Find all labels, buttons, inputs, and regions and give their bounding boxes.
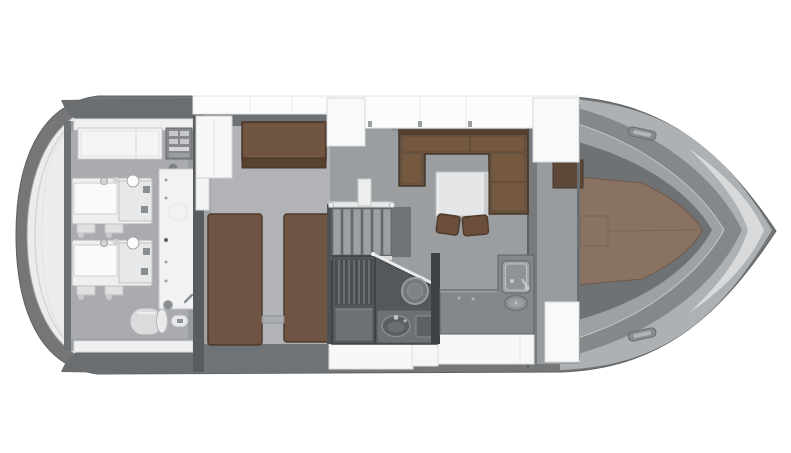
twin-bed-starboard <box>284 214 332 342</box>
stairs-pillar <box>358 179 371 206</box>
stairs-cabinet <box>327 98 365 146</box>
deck-tick <box>418 121 422 127</box>
stair-tread <box>383 209 391 255</box>
deck-tick <box>468 121 472 127</box>
cooktop <box>505 296 528 311</box>
stool <box>462 215 489 236</box>
yacht-floorplan <box>0 0 791 453</box>
shower-bench <box>335 308 373 341</box>
stair-tread <box>363 209 371 255</box>
bilge-port <box>164 301 173 310</box>
sofa-cushion <box>403 137 524 151</box>
bulkhead-white-top <box>533 98 579 162</box>
sofa-cushion <box>402 154 421 183</box>
hardtop-band-top <box>61 98 193 121</box>
newel-post <box>390 203 395 208</box>
deck-tick <box>368 121 372 127</box>
twin-bed-port <box>208 214 262 345</box>
stair-tread <box>343 209 351 255</box>
deck-strip-bottom <box>74 341 193 352</box>
vanity-tray <box>416 316 432 337</box>
stair-tread <box>373 209 381 255</box>
aft-cabin-sofa <box>242 122 326 168</box>
newel-post <box>329 203 334 208</box>
generator-cabinet <box>159 169 196 309</box>
hardtop-band-bottom <box>61 351 193 374</box>
washbasin-vanity <box>377 310 435 343</box>
shower <box>335 259 373 341</box>
bed-connector <box>262 316 284 323</box>
thruster-pill <box>171 315 188 327</box>
electrical-panel <box>166 128 192 159</box>
coffee-table <box>436 172 488 216</box>
bow-cabin <box>560 98 772 370</box>
stool <box>436 214 460 236</box>
aft-cabin-bottom-wall <box>204 344 330 372</box>
basin-faucet <box>394 315 399 320</box>
yacht-floorplan-canvas <box>0 0 791 453</box>
stair-tread <box>353 209 361 255</box>
engine-room <box>64 119 196 352</box>
galley-sink <box>502 261 530 293</box>
water-heater <box>130 308 168 335</box>
bulkhead-white-bottom <box>545 302 579 362</box>
storage-bench <box>78 128 162 159</box>
stair-tread <box>333 209 341 255</box>
head-front-panel <box>329 344 413 369</box>
